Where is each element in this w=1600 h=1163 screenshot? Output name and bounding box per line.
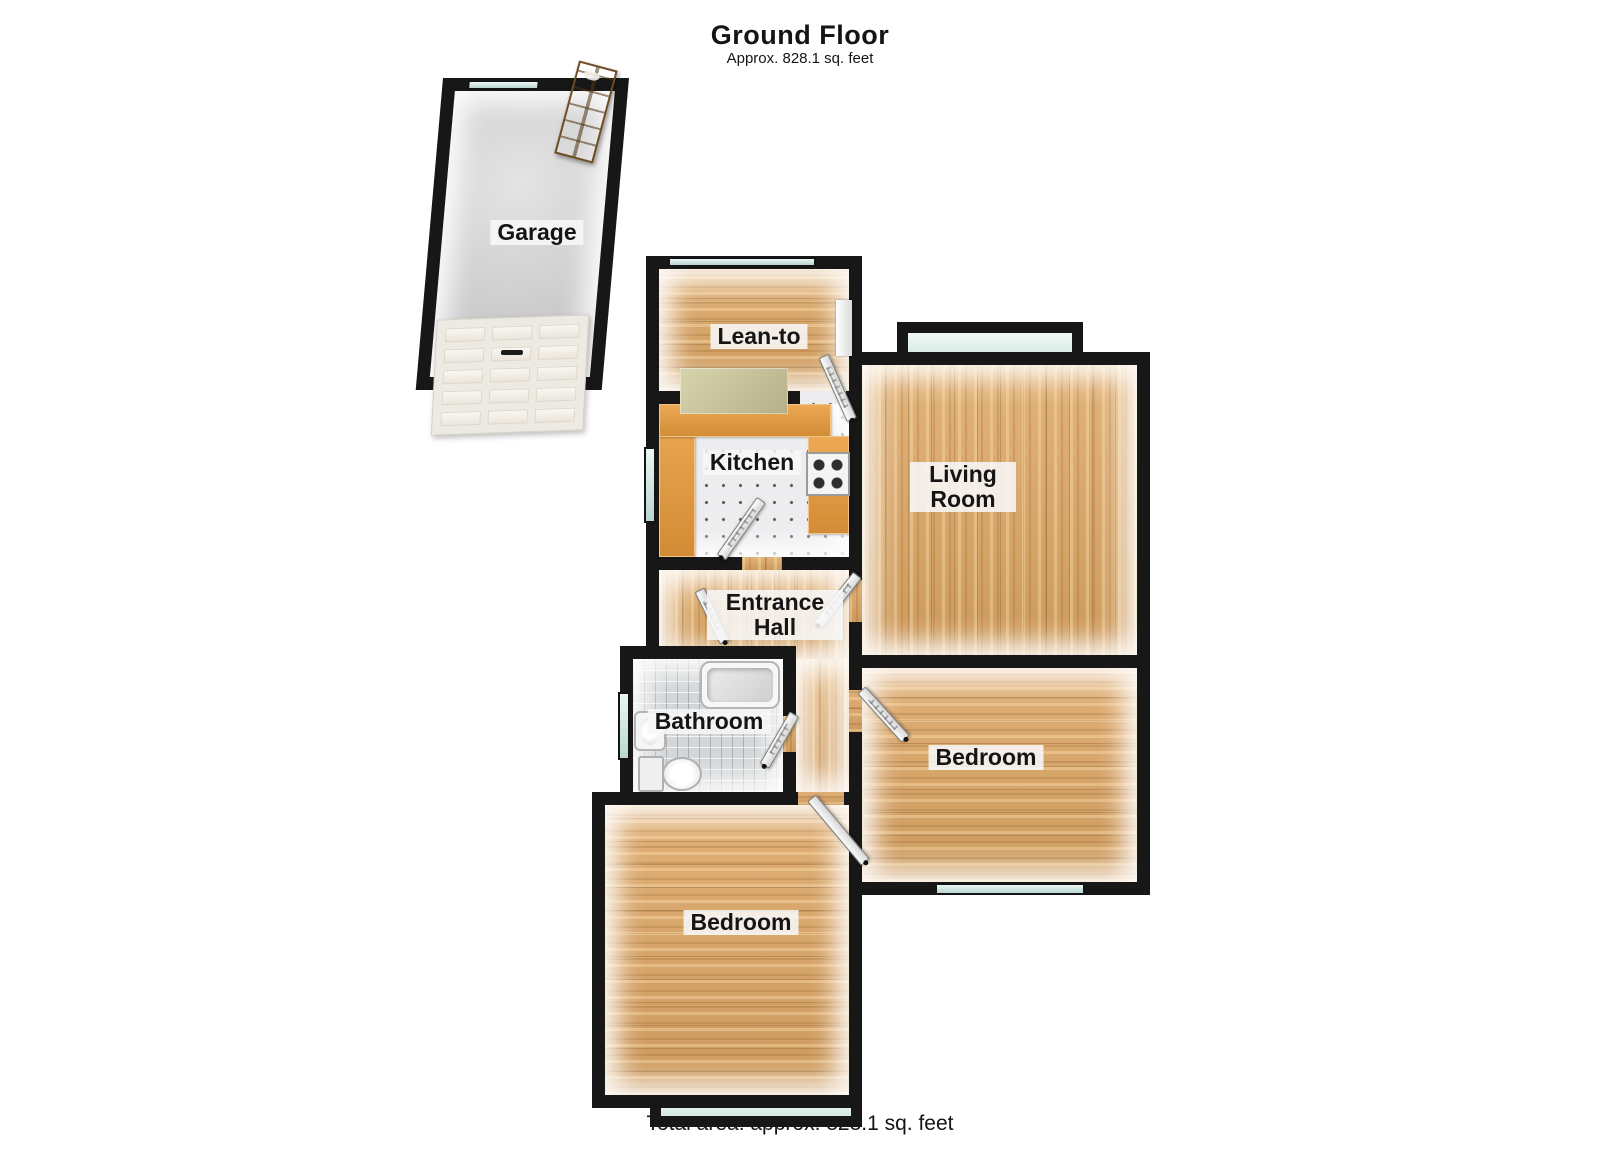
doorway-kitchen-hall <box>742 557 782 570</box>
kitchen-side-window <box>644 447 656 523</box>
toilet-tank <box>638 756 664 792</box>
garage-door <box>431 314 589 435</box>
room-bedroom-right <box>849 655 1150 895</box>
label-garage: Garage <box>490 220 583 245</box>
bathtub <box>700 661 780 709</box>
label-entrance-hall: Entrance Hall <box>707 590 843 640</box>
label-kitchen: Kitchen <box>703 450 801 475</box>
garage-door-handle <box>501 350 523 355</box>
room-bedroom-bottom <box>592 792 862 1108</box>
lean-to-appliance <box>836 300 852 356</box>
floorplan-page: Ground Floor Approx. 828.1 sq. feet <box>0 0 1600 1163</box>
bedroom-right-window <box>935 883 1085 895</box>
toilet-bowl <box>662 757 702 791</box>
garage-window <box>467 80 540 90</box>
label-bedroom-bottom: Bedroom <box>684 910 799 935</box>
stove-hob <box>806 452 850 496</box>
label-bathroom: Bathroom <box>648 709 771 734</box>
page-title: Ground Floor <box>0 20 1600 51</box>
page-subtitle: Approx. 828.1 sq. feet <box>0 50 1600 67</box>
lean-to-window <box>668 257 816 267</box>
label-bedroom-right: Bedroom <box>929 745 1044 770</box>
label-lean-to: Lean-to <box>710 324 807 349</box>
bathroom-side-window <box>618 692 630 760</box>
label-living-room: Living Room <box>910 462 1016 512</box>
lean-to-step-mat <box>680 368 788 414</box>
